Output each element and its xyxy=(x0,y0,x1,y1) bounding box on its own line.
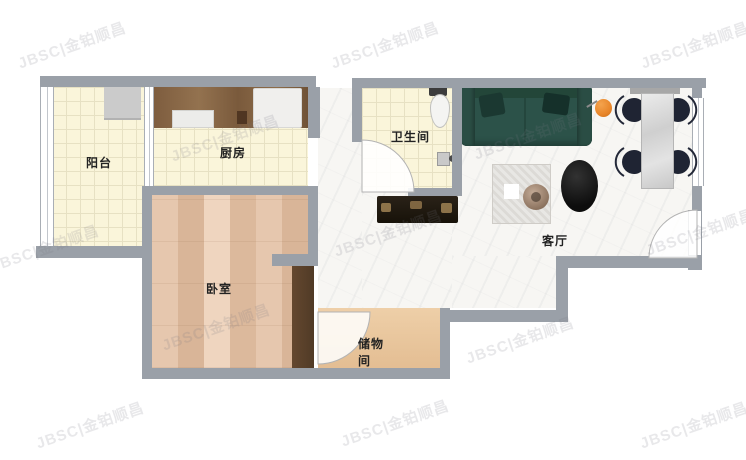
sofa-pillow-left xyxy=(478,92,505,118)
living-side-window xyxy=(692,98,704,186)
wall-kitchen-bottom xyxy=(142,186,316,195)
bedroom-door-leaf xyxy=(292,266,314,368)
watermark: JBSC|金铂顺昌 xyxy=(328,17,442,74)
tv-console-ornament xyxy=(381,203,391,212)
floor-lamp xyxy=(595,99,612,117)
wall-bedroom-stub xyxy=(272,254,318,266)
wall-right-top xyxy=(692,80,702,98)
wall-top-left xyxy=(40,76,316,87)
sofa-arm-right xyxy=(577,84,592,146)
room-label-storage: 储物 间 xyxy=(358,336,384,370)
watermark: JBSC|金铂顺昌 xyxy=(15,17,129,74)
watermark: JBSC|金铂顺昌 xyxy=(638,17,746,74)
wall-right-mid xyxy=(692,186,702,212)
watermark: JBSC|金铂顺昌 xyxy=(33,397,147,454)
sofa-pillow-right xyxy=(542,92,571,115)
wall-bedroom-right xyxy=(308,186,318,262)
room-label-storage-line2: 间 xyxy=(358,353,384,370)
floor-plan: 阳台 厨房 卫生间 卧室 客厅 储物 间 JBSC|金铂顺昌 JBSC|金铂顺昌… xyxy=(0,0,746,460)
balcony-kitchen-partition xyxy=(144,87,154,186)
rug-white-square xyxy=(504,184,519,199)
wall-top-right xyxy=(352,78,706,88)
stove xyxy=(172,110,214,128)
room-label-kitchen: 厨房 xyxy=(220,144,246,161)
wall-kitchen-right xyxy=(308,87,320,138)
dining-table xyxy=(641,93,674,189)
sofa-arm-left xyxy=(460,84,475,146)
room-label-bathroom: 卫生间 xyxy=(391,128,430,145)
coffee-table xyxy=(561,160,598,212)
kitchen-jar xyxy=(237,111,247,124)
tv-console-ornament xyxy=(441,203,452,213)
room-label-balcony: 阳台 xyxy=(86,154,112,171)
fridge xyxy=(253,88,302,128)
watermark: JBSC|金铂顺昌 xyxy=(637,397,746,454)
room-label-bedroom: 卧室 xyxy=(206,280,232,297)
wall-bathroom-left xyxy=(352,87,362,142)
wall-bathroom-bottom xyxy=(408,188,462,196)
tv-console-ornament xyxy=(410,201,422,209)
wall-living-bottom-west xyxy=(440,310,568,322)
wall-bathroom-right xyxy=(452,87,462,196)
plant-center xyxy=(531,192,541,202)
wall-bedroom-left xyxy=(142,186,152,379)
watermark: JBSC|金铂顺昌 xyxy=(338,395,452,452)
wall-balcony-bottom xyxy=(36,246,152,258)
sofa-cushion-divider xyxy=(524,98,526,144)
wall-bottom-long xyxy=(142,368,450,379)
balcony-window xyxy=(40,87,54,246)
wall-living-bottom-east xyxy=(556,256,702,268)
living-room-floor-south xyxy=(452,256,556,308)
sofa xyxy=(460,84,592,146)
room-label-storage-line1: 储物 xyxy=(358,336,384,353)
entry-door-leaf xyxy=(688,210,702,256)
washing-machine xyxy=(104,87,141,120)
room-label-living-room: 客厅 xyxy=(542,232,568,249)
